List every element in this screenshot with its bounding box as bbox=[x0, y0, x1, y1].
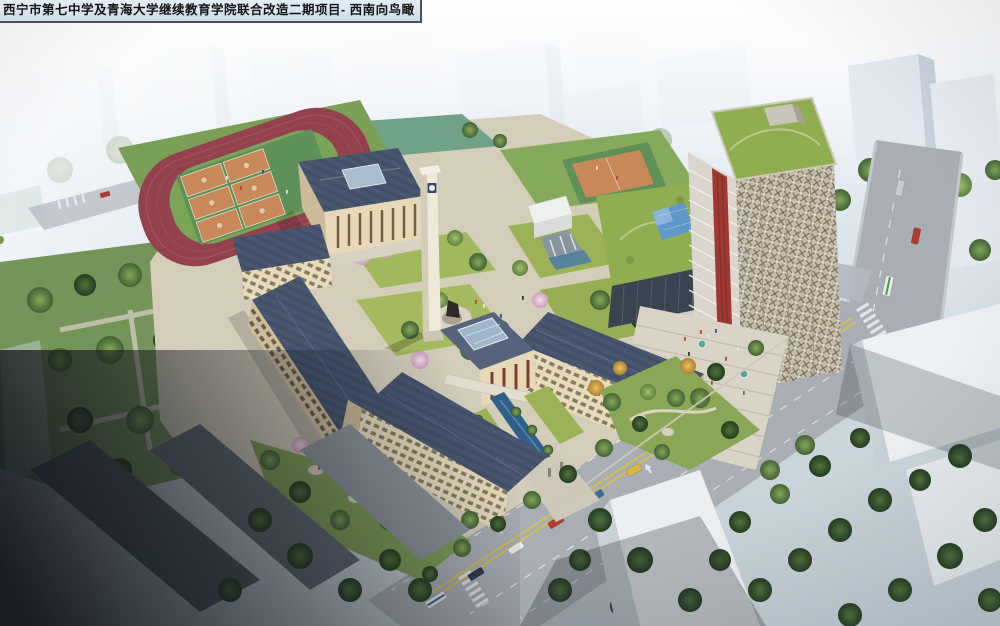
caption-title: 西宁市第七中学及青海大学继续教育学院联合改造二期项目- 西南向鸟瞰 bbox=[0, 0, 422, 23]
vignette bbox=[0, 0, 1000, 626]
rendering-viewport: 西宁市第七中学及青海大学继续教育学院联合改造二期项目- 西南向鸟瞰 bbox=[0, 0, 1000, 626]
rendering-canvas bbox=[0, 0, 1000, 626]
